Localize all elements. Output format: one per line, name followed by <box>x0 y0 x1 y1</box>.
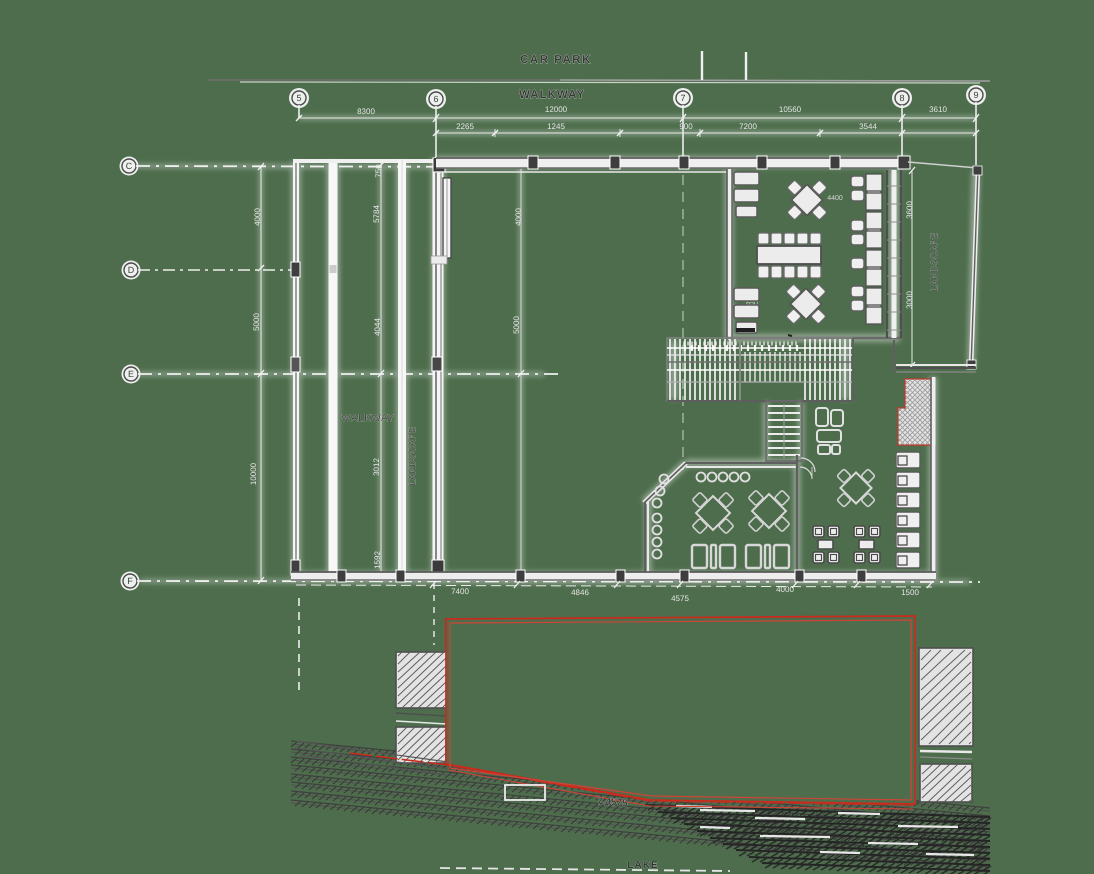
svg-text:WALKWAY: WALKWAY <box>341 413 394 424</box>
svg-text:5000: 5000 <box>512 316 521 334</box>
svg-text:3544: 3544 <box>859 122 877 131</box>
svg-text:1245: 1245 <box>547 122 565 131</box>
svg-text:3000: 3000 <box>905 291 914 309</box>
svg-text:750: 750 <box>374 164 383 178</box>
svg-text:5784: 5784 <box>372 205 381 223</box>
svg-text:7400: 7400 <box>451 587 469 596</box>
svg-text:3610: 3610 <box>929 105 947 114</box>
svg-text:10560: 10560 <box>779 105 802 114</box>
svg-text:LANDSCAPE: LANDSCAPE <box>929 232 939 291</box>
svg-text:4044: 4044 <box>373 318 382 336</box>
svg-text:CAR PARK: CAR PARK <box>520 54 592 66</box>
svg-text:9: 9 <box>973 90 978 100</box>
svg-text:E: E <box>128 369 134 379</box>
svg-text:4400: 4400 <box>827 195 843 202</box>
svg-text:5000: 5000 <box>252 313 261 331</box>
svg-text:1500: 1500 <box>901 588 919 597</box>
svg-text:3012: 3012 <box>372 458 381 476</box>
svg-text:LANDSCAPE: LANDSCAPE <box>407 426 417 485</box>
svg-text:8300: 8300 <box>357 107 375 116</box>
svg-text:3600: 3600 <box>905 201 914 219</box>
svg-text:4000: 4000 <box>776 585 794 594</box>
svg-text:4846: 4846 <box>571 588 589 597</box>
svg-text:12000: 12000 <box>545 105 568 114</box>
svg-text:5: 5 <box>296 93 301 103</box>
svg-text:6: 6 <box>433 94 438 104</box>
svg-text:10000: 10000 <box>249 462 258 485</box>
svg-text:4000: 4000 <box>253 208 262 226</box>
svg-text:D: D <box>128 265 135 275</box>
svg-text:F: F <box>127 576 133 586</box>
svg-text:1592: 1592 <box>373 551 382 569</box>
svg-text:7200: 7200 <box>739 122 757 131</box>
svg-text:C: C <box>126 161 133 171</box>
svg-text:2265: 2265 <box>456 122 474 131</box>
svg-text:4575: 4575 <box>671 594 689 603</box>
svg-text:8: 8 <box>899 93 904 103</box>
svg-text:7: 7 <box>680 93 685 103</box>
svg-text:7.4575: 7.4575 <box>597 796 629 809</box>
svg-text:WALKWAY: WALKWAY <box>519 89 585 101</box>
svg-text:900: 900 <box>679 122 693 131</box>
svg-text:4000: 4000 <box>514 208 523 226</box>
